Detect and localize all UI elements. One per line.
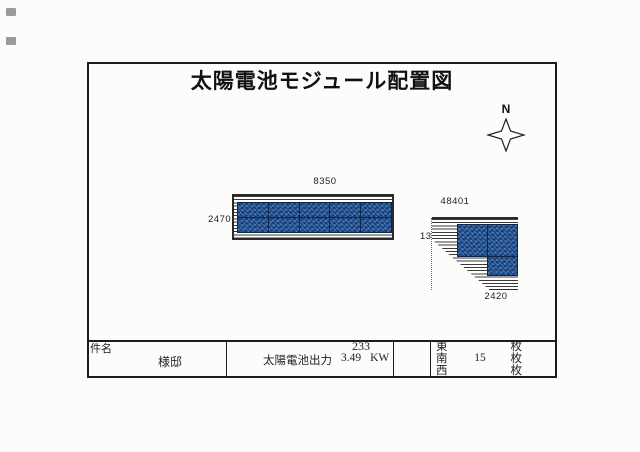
owner-name: 様邸 [158, 353, 182, 370]
pv-module [487, 224, 518, 257]
compass-north-label: N [486, 102, 526, 116]
pv-module [269, 218, 299, 232]
direction-count: 15 [452, 352, 508, 364]
scan-artifact-mark [6, 37, 16, 45]
titleblock-divider [226, 341, 227, 378]
direction-unit: 枚 [508, 362, 522, 378]
page-title: 太陽電池モジュール配置図 [87, 65, 557, 95]
output-value: 3.49 [341, 352, 361, 368]
direction-row-west: 西 枚 [436, 364, 522, 376]
output-line: 太陽電池出力 3.49 KW [263, 352, 389, 368]
scan-artifact-mark [6, 8, 16, 16]
titleblock-divider [430, 341, 431, 378]
dim-south-width: 8350 [313, 176, 336, 187]
pv-module [361, 203, 391, 217]
pv-module [300, 218, 330, 232]
pv-module [330, 218, 360, 232]
pv-module [238, 218, 268, 232]
output-unit: KW [370, 352, 389, 368]
dim-west-width: 2420 [484, 291, 507, 302]
pv-module [361, 218, 391, 232]
pv-module [457, 224, 488, 257]
titleblock-divider [393, 341, 394, 378]
pv-module [238, 203, 268, 217]
west-roof-left-edge [431, 218, 432, 290]
pv-module [487, 256, 518, 276]
pv-module [269, 203, 299, 217]
dim-south-height: 2470 [208, 214, 231, 225]
output-label: 太陽電池出力 [263, 352, 332, 368]
dim-west-top: 48401 [441, 196, 470, 207]
project-name-label: 件名 [90, 340, 112, 356]
pv-module [300, 203, 330, 217]
pv-module [330, 203, 360, 217]
drawing-sheet: 太陽電池モジュール配置図 N 8350 2470 48401 1350 2420… [0, 0, 640, 452]
direction-name: 西 [436, 362, 452, 378]
south-pv-array [237, 202, 392, 233]
direction-count-table: 東 枚 南 15 枚 西 枚 [436, 340, 522, 376]
compass-star-icon [486, 118, 526, 152]
